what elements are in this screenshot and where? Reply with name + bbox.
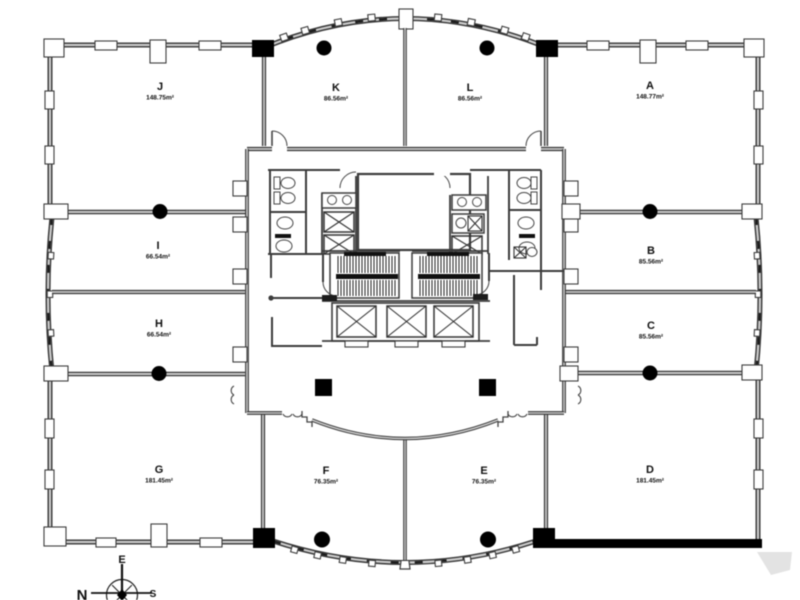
svg-text:F: F	[323, 465, 330, 477]
svg-text:L: L	[467, 82, 474, 94]
svg-text:66.54m²: 66.54m²	[147, 332, 172, 339]
svg-text:A: A	[646, 80, 654, 92]
svg-text:I: I	[156, 240, 159, 252]
svg-text:85.56m²: 85.56m²	[639, 334, 664, 341]
svg-text:86.56m²: 86.56m²	[324, 96, 349, 103]
svg-text:S: S	[150, 589, 157, 600]
svg-text:76.35m²: 76.35m²	[314, 479, 339, 486]
svg-text:181.45m²: 181.45m²	[636, 478, 665, 485]
svg-text:H: H	[155, 318, 163, 330]
svg-text:86.56m²: 86.56m²	[458, 96, 483, 103]
svg-text:76.35m²: 76.35m²	[472, 479, 497, 486]
svg-text:J: J	[157, 81, 163, 93]
svg-text:181.45m²: 181.45m²	[145, 478, 174, 485]
svg-text:C: C	[647, 320, 655, 332]
svg-text:148.77m²: 148.77m²	[636, 94, 665, 101]
svg-text:E: E	[480, 465, 487, 477]
svg-text:66.54m²: 66.54m²	[146, 254, 171, 261]
svg-text:N: N	[77, 587, 88, 600]
svg-text:K: K	[332, 82, 340, 94]
svg-text:G: G	[155, 464, 164, 476]
svg-text:B: B	[647, 245, 655, 257]
svg-text:E: E	[118, 554, 125, 566]
svg-text:148.75m²: 148.75m²	[146, 95, 175, 102]
svg-text:85.56m²: 85.56m²	[639, 259, 664, 266]
svg-text:D: D	[646, 464, 654, 476]
